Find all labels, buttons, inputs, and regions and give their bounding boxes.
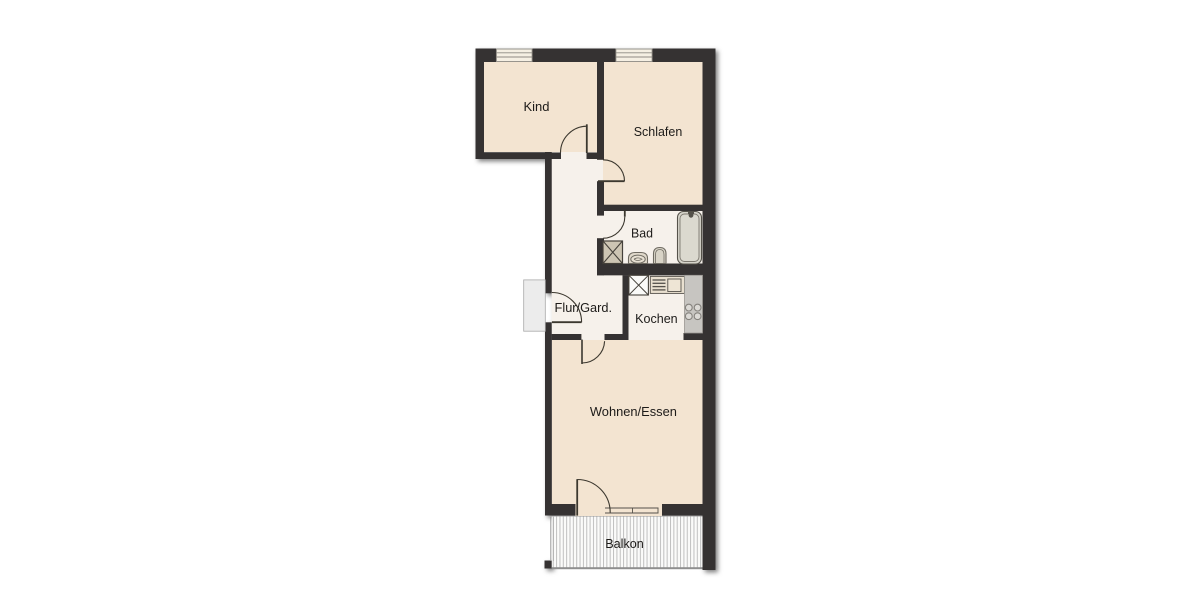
svg-text:Wohnen/Essen: Wohnen/Essen: [590, 404, 677, 419]
svg-text:Bad: Bad: [631, 226, 653, 241]
svg-text:Kind: Kind: [524, 99, 550, 114]
svg-text:Kochen: Kochen: [635, 311, 678, 326]
svg-text:Balkon: Balkon: [605, 536, 644, 551]
svg-text:Schlafen: Schlafen: [634, 124, 683, 139]
svg-text:Flur/Gard.: Flur/Gard.: [555, 300, 613, 315]
